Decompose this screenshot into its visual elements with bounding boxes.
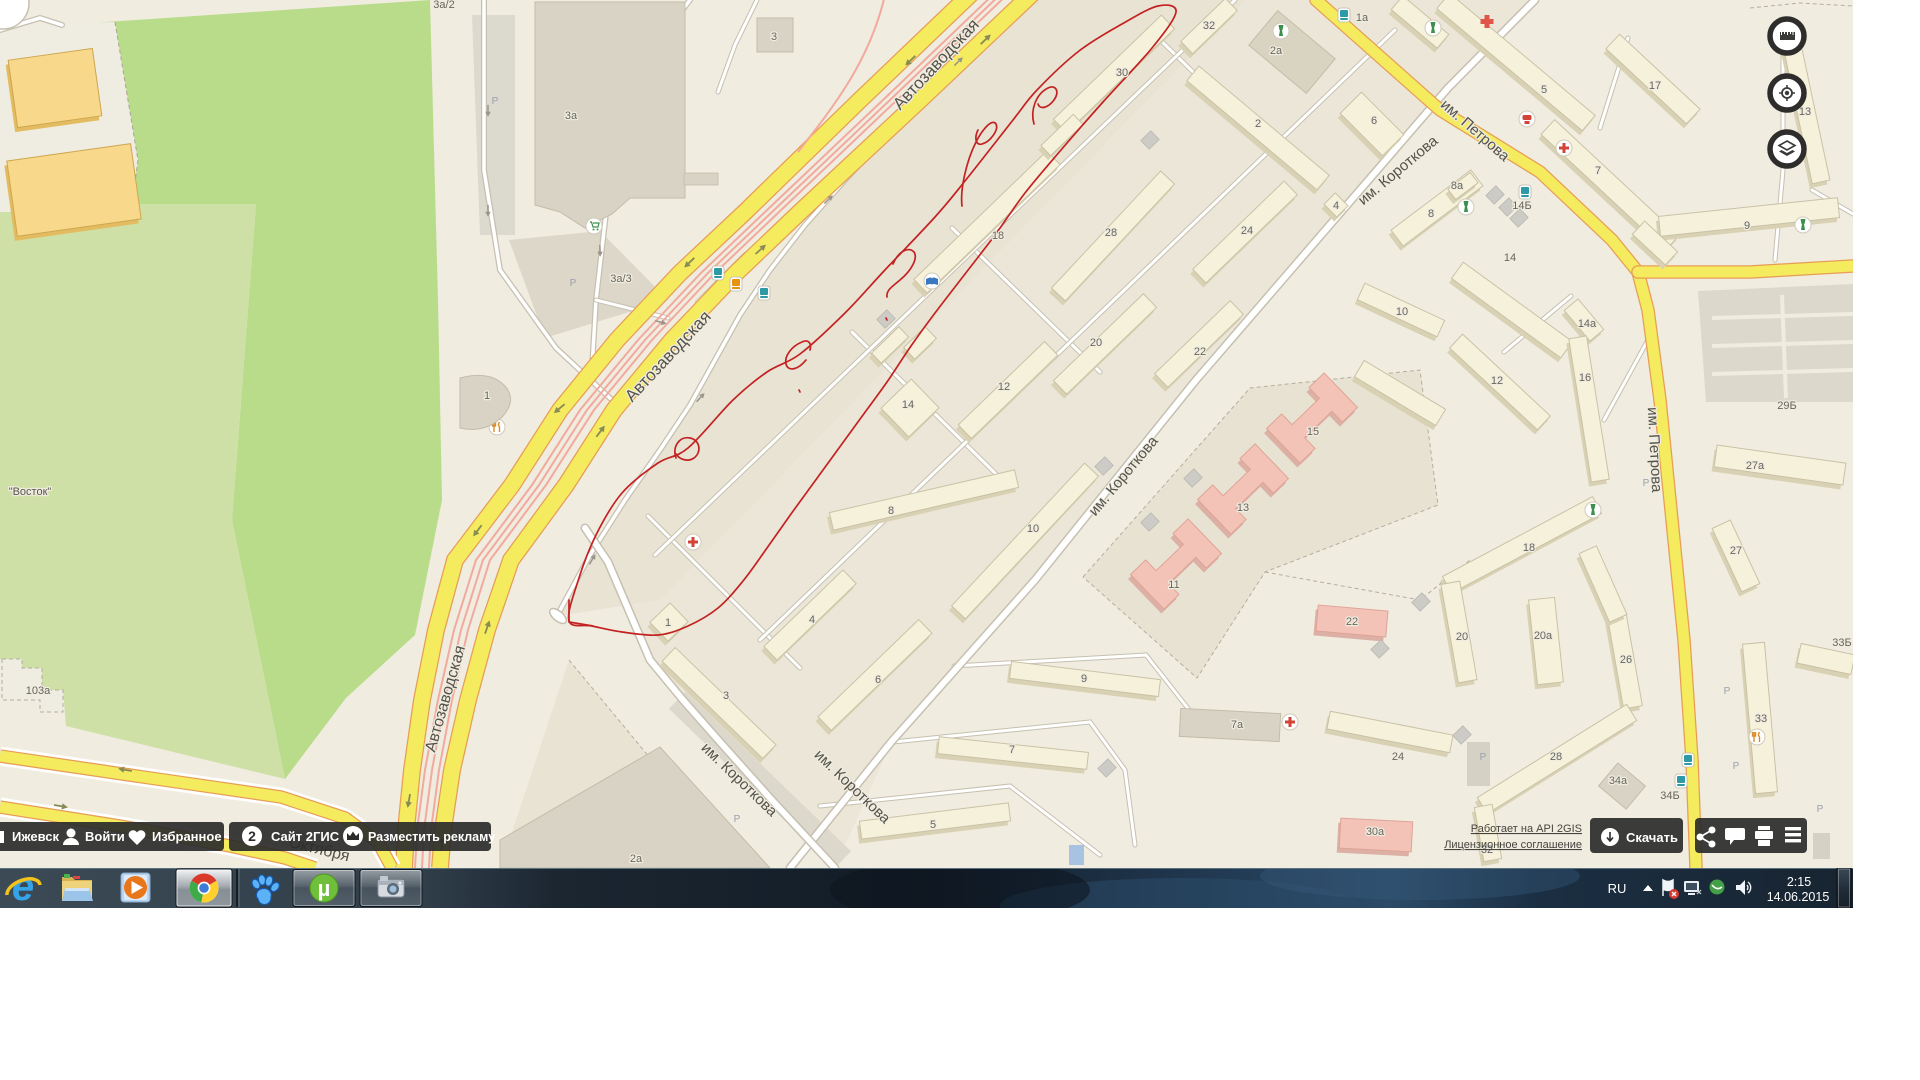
svg-text:Лицензионное соглашение: Лицензионное соглашение — [1444, 839, 1582, 851]
svg-text:30: 30 — [1116, 67, 1128, 79]
svg-text:12: 12 — [1491, 375, 1503, 387]
svg-text:2a: 2a — [1270, 45, 1283, 57]
svg-text:8: 8 — [888, 505, 894, 517]
svg-text:Сайт 2ГИС: Сайт 2ГИС — [271, 829, 340, 844]
svg-text:3a: 3a — [565, 110, 578, 122]
svg-text:28: 28 — [1550, 751, 1562, 763]
svg-text:P: P — [1724, 686, 1731, 697]
svg-text:3a/2: 3a/2 — [433, 0, 454, 11]
svg-text:20: 20 — [1090, 337, 1102, 349]
svg-text:11: 11 — [1168, 579, 1179, 591]
svg-text:6: 6 — [875, 674, 881, 686]
svg-text:3: 3 — [771, 31, 777, 43]
svg-text:e: e — [12, 868, 34, 908]
svg-text:RU: RU — [1608, 881, 1627, 896]
svg-text:2: 2 — [248, 828, 256, 844]
svg-text:13: 13 — [1799, 106, 1811, 118]
svg-text:Скачать: Скачать — [1626, 830, 1678, 845]
svg-text:8a: 8a — [1451, 180, 1464, 192]
svg-text:18: 18 — [1523, 542, 1535, 554]
svg-text:1: 1 — [665, 617, 671, 629]
svg-text:3a/3: 3a/3 — [610, 273, 631, 285]
svg-text:Избранное: Избранное — [152, 829, 222, 844]
svg-text:P: P — [1733, 761, 1740, 772]
svg-text:2a: 2a — [630, 853, 643, 865]
svg-text:P: P — [1480, 752, 1487, 763]
svg-text:20: 20 — [1456, 631, 1468, 643]
svg-text:1a: 1a — [1356, 12, 1369, 24]
svg-text:4: 4 — [1333, 200, 1339, 212]
svg-text:2:15: 2:15 — [1787, 875, 1811, 889]
svg-text:P: P — [734, 814, 741, 825]
svg-text:34Б: 34Б — [1660, 790, 1679, 802]
svg-text:2: 2 — [1255, 118, 1261, 130]
svg-text:14.06.2015: 14.06.2015 — [1767, 890, 1830, 904]
svg-text:28: 28 — [1105, 227, 1117, 239]
svg-text:4: 4 — [809, 614, 815, 626]
svg-text:12: 12 — [998, 381, 1010, 393]
svg-text:34a: 34a — [1609, 775, 1628, 787]
svg-text:5: 5 — [1541, 84, 1547, 96]
svg-text:14: 14 — [902, 399, 914, 411]
svg-text:24: 24 — [1392, 751, 1404, 763]
svg-text:10: 10 — [1396, 306, 1408, 318]
svg-text:29Б: 29Б — [1777, 400, 1796, 412]
svg-text:22: 22 — [1346, 616, 1358, 628]
svg-text:Ижевск: Ижевск — [12, 829, 60, 844]
svg-text:22: 22 — [1194, 346, 1206, 358]
svg-text:µ: µ — [318, 876, 331, 901]
svg-text:1: 1 — [484, 390, 490, 402]
svg-text:Разместить рекламу: Разместить рекламу — [368, 830, 495, 844]
svg-text:Работает на API 2GIS: Работает на API 2GIS — [1471, 823, 1582, 835]
svg-text:16: 16 — [1579, 372, 1591, 384]
svg-text:33Б: 33Б — [1832, 637, 1851, 649]
svg-text:27: 27 — [1730, 545, 1742, 557]
svg-text:13: 13 — [1237, 502, 1249, 514]
svg-text:26: 26 — [1620, 654, 1632, 666]
svg-text:"Восток": "Восток" — [9, 486, 52, 498]
svg-text:Войти: Войти — [85, 829, 125, 844]
svg-text:18: 18 — [992, 230, 1004, 242]
svg-text:5: 5 — [930, 819, 936, 831]
svg-text:P: P — [570, 278, 577, 289]
svg-text:6: 6 — [1371, 115, 1377, 127]
svg-text:32: 32 — [1203, 20, 1215, 32]
svg-text:10: 10 — [1027, 523, 1039, 535]
svg-text:14Б: 14Б — [1512, 200, 1531, 212]
svg-text:15: 15 — [1307, 426, 1319, 438]
svg-text:14: 14 — [1504, 252, 1516, 264]
svg-text:33: 33 — [1755, 713, 1767, 725]
svg-text:20a: 20a — [1534, 630, 1553, 642]
svg-text:24: 24 — [1241, 225, 1253, 237]
svg-text:7a: 7a — [1231, 719, 1244, 731]
svg-text:8: 8 — [1428, 208, 1434, 220]
svg-text:9: 9 — [1081, 673, 1087, 685]
svg-text:27a: 27a — [1746, 460, 1765, 472]
svg-text:P: P — [1817, 804, 1824, 815]
svg-text:17: 17 — [1649, 80, 1661, 92]
svg-text:7: 7 — [1009, 744, 1015, 756]
svg-text:30a: 30a — [1366, 826, 1385, 838]
svg-text:14a: 14a — [1578, 318, 1597, 330]
svg-text:P: P — [492, 96, 499, 107]
svg-text:9: 9 — [1744, 220, 1750, 232]
svg-text:7: 7 — [1595, 165, 1601, 177]
svg-text:103a: 103a — [26, 685, 51, 697]
svg-text:3: 3 — [723, 690, 729, 702]
